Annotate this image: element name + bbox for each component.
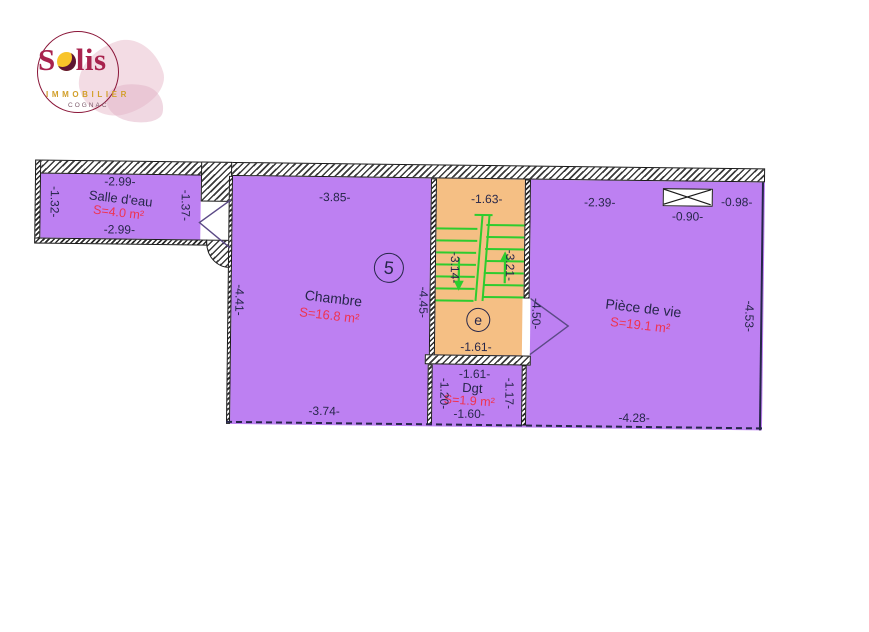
dim-piece-bottom: -4.28- xyxy=(618,411,650,425)
dim-dgt-right: -1.17- xyxy=(502,378,516,410)
dim-dgt-left: -1.20- xyxy=(437,378,451,410)
logo-city: COGNAC xyxy=(68,102,109,109)
wall-step-block xyxy=(201,162,232,202)
dim-stairs-right: -3.21- xyxy=(503,250,517,282)
window-cross-icon xyxy=(664,189,711,205)
dim-salle-right: -1.37- xyxy=(178,190,192,222)
dim-chambre-right: -4.45- xyxy=(416,287,430,319)
dim-stairs-bottom: -1.61- xyxy=(460,340,492,354)
solis-logo: Slis IMMOBILIER COGNAC xyxy=(16,14,191,134)
wall-dgt-right xyxy=(521,365,527,425)
dim-piece-left: -4.50- xyxy=(529,298,543,330)
dim-stairs-left: -3.14- xyxy=(448,252,462,284)
window-symbol xyxy=(663,188,713,207)
dim-stairs-top: -1.63- xyxy=(471,192,503,206)
dim-chambre-left: -4.41- xyxy=(232,284,246,316)
door-swing-icon-salle xyxy=(194,197,235,249)
dim-salle-top: -2.99- xyxy=(104,174,136,188)
logo-brand-lis: lis xyxy=(76,42,107,77)
dim-piece-top-left: -2.39- xyxy=(584,195,616,209)
logo-subtitle: IMMOBILIER xyxy=(46,90,130,99)
dim-piece-top-right: -0.98- xyxy=(721,195,753,209)
dim-piece-window: -0.90- xyxy=(672,209,704,223)
logo-brand: Slis xyxy=(38,44,168,75)
dim-salle-bottom: -2.99- xyxy=(104,222,136,236)
logo-brand-s: S xyxy=(38,42,56,77)
dim-salle-left: -1.32- xyxy=(47,186,61,218)
dim-dgt-bottom: -1.60- xyxy=(453,407,485,421)
floor-plan: -2.99- Salle d'eau S=4.0 m² -2.99- -1.32… xyxy=(32,156,767,441)
dim-chambre-top: -3.85- xyxy=(319,190,351,204)
wall-salle-left xyxy=(34,160,41,244)
wall-salle-bottom xyxy=(34,238,207,246)
dim-chambre-bottom: -3.74- xyxy=(308,404,340,418)
dim-piece-right: -4.53- xyxy=(742,300,756,332)
sun-icon xyxy=(57,52,76,71)
wall-below-stair xyxy=(425,354,531,365)
wall-dgt-left xyxy=(427,364,433,424)
